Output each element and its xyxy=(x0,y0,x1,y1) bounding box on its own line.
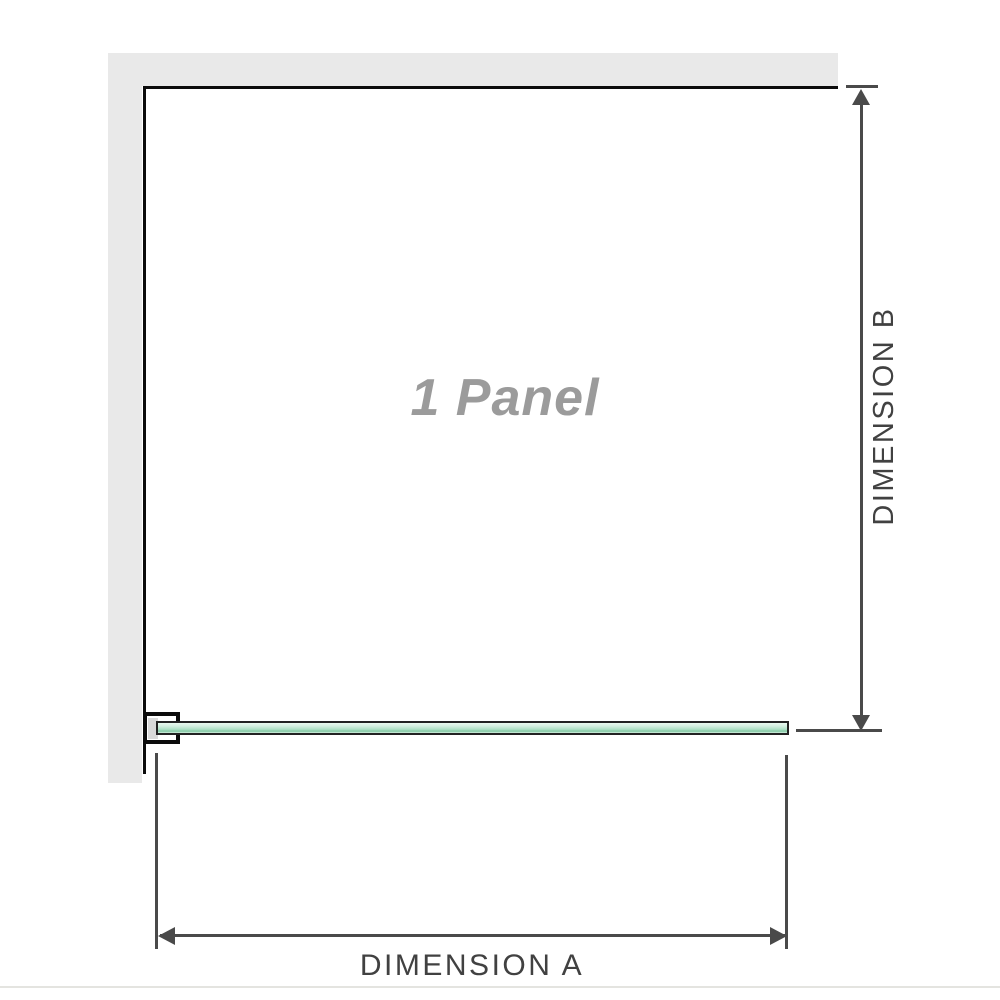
dimension-b-tick-top xyxy=(846,85,878,88)
dimension-b-label: DIMENSION B xyxy=(867,216,901,616)
bottom-divider xyxy=(0,986,1000,988)
arrow-down-icon xyxy=(852,715,870,731)
dimension-b-line xyxy=(860,93,863,723)
panel-count-label: 1 Panel xyxy=(330,368,680,428)
dimension-a-label: DIMENSION A xyxy=(316,948,628,984)
dimension-a-line xyxy=(160,934,787,937)
arrow-right-icon xyxy=(770,927,787,945)
arrow-left-icon xyxy=(158,927,175,945)
glass-panel-bar xyxy=(156,721,789,735)
arrow-up-icon xyxy=(852,89,870,105)
wall-segment-left xyxy=(108,53,142,783)
panel-outline-top xyxy=(143,86,838,89)
panel-outline-left xyxy=(143,86,146,774)
dimension-diagram: 1 Panel DIMENSION B DIMENSION A xyxy=(0,0,1000,1000)
dimension-a-extension-left xyxy=(155,753,158,949)
dimension-a-extension-right xyxy=(785,755,788,949)
wall-segment-top xyxy=(108,53,838,86)
